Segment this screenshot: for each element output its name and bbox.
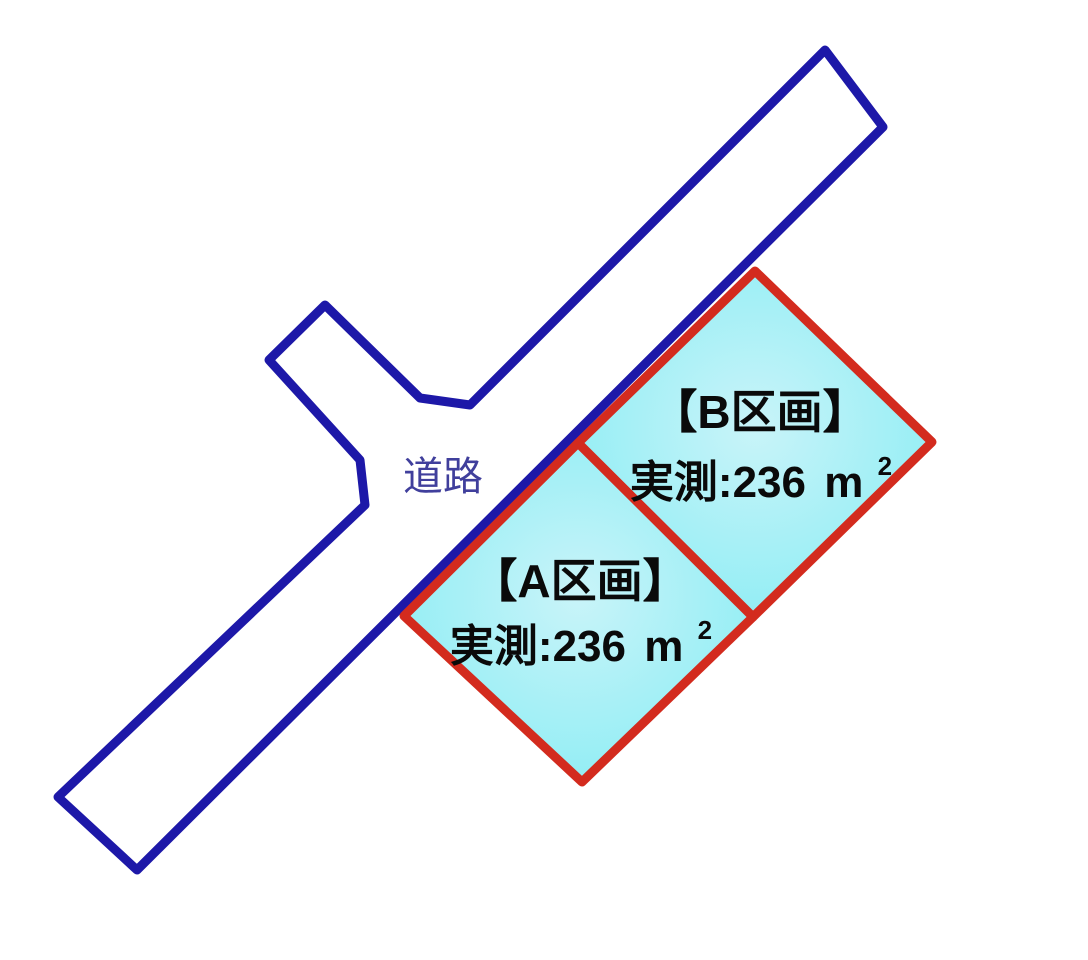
plot-a-name-label: 【A区画】	[471, 555, 688, 607]
plot-a-area-label: 実測:236 m 2	[450, 615, 712, 671]
plot-b-area-exponent: 2	[878, 451, 892, 481]
road-label: 道路	[403, 455, 483, 499]
plot-a-area-exponent: 2	[698, 615, 712, 645]
plot-b-area-value: 実測:236	[630, 458, 806, 507]
plot-b-name-label: 【B区画】	[651, 386, 868, 438]
plot-b-area-label: 実測:236 m 2	[630, 451, 892, 507]
plot-map-drawing: 道路 【B区画】 実測:236 m 2 【A区画】 実測:236 m 2	[0, 0, 1088, 960]
plot-map-canvas: 道路 【B区画】 実測:236 m 2 【A区画】 実測:236 m 2	[0, 0, 1088, 960]
plot-b-area-unit: m	[824, 458, 863, 507]
plot-a-area-value: 実測:236	[450, 622, 626, 671]
plot-a-area-unit: m	[644, 622, 683, 671]
